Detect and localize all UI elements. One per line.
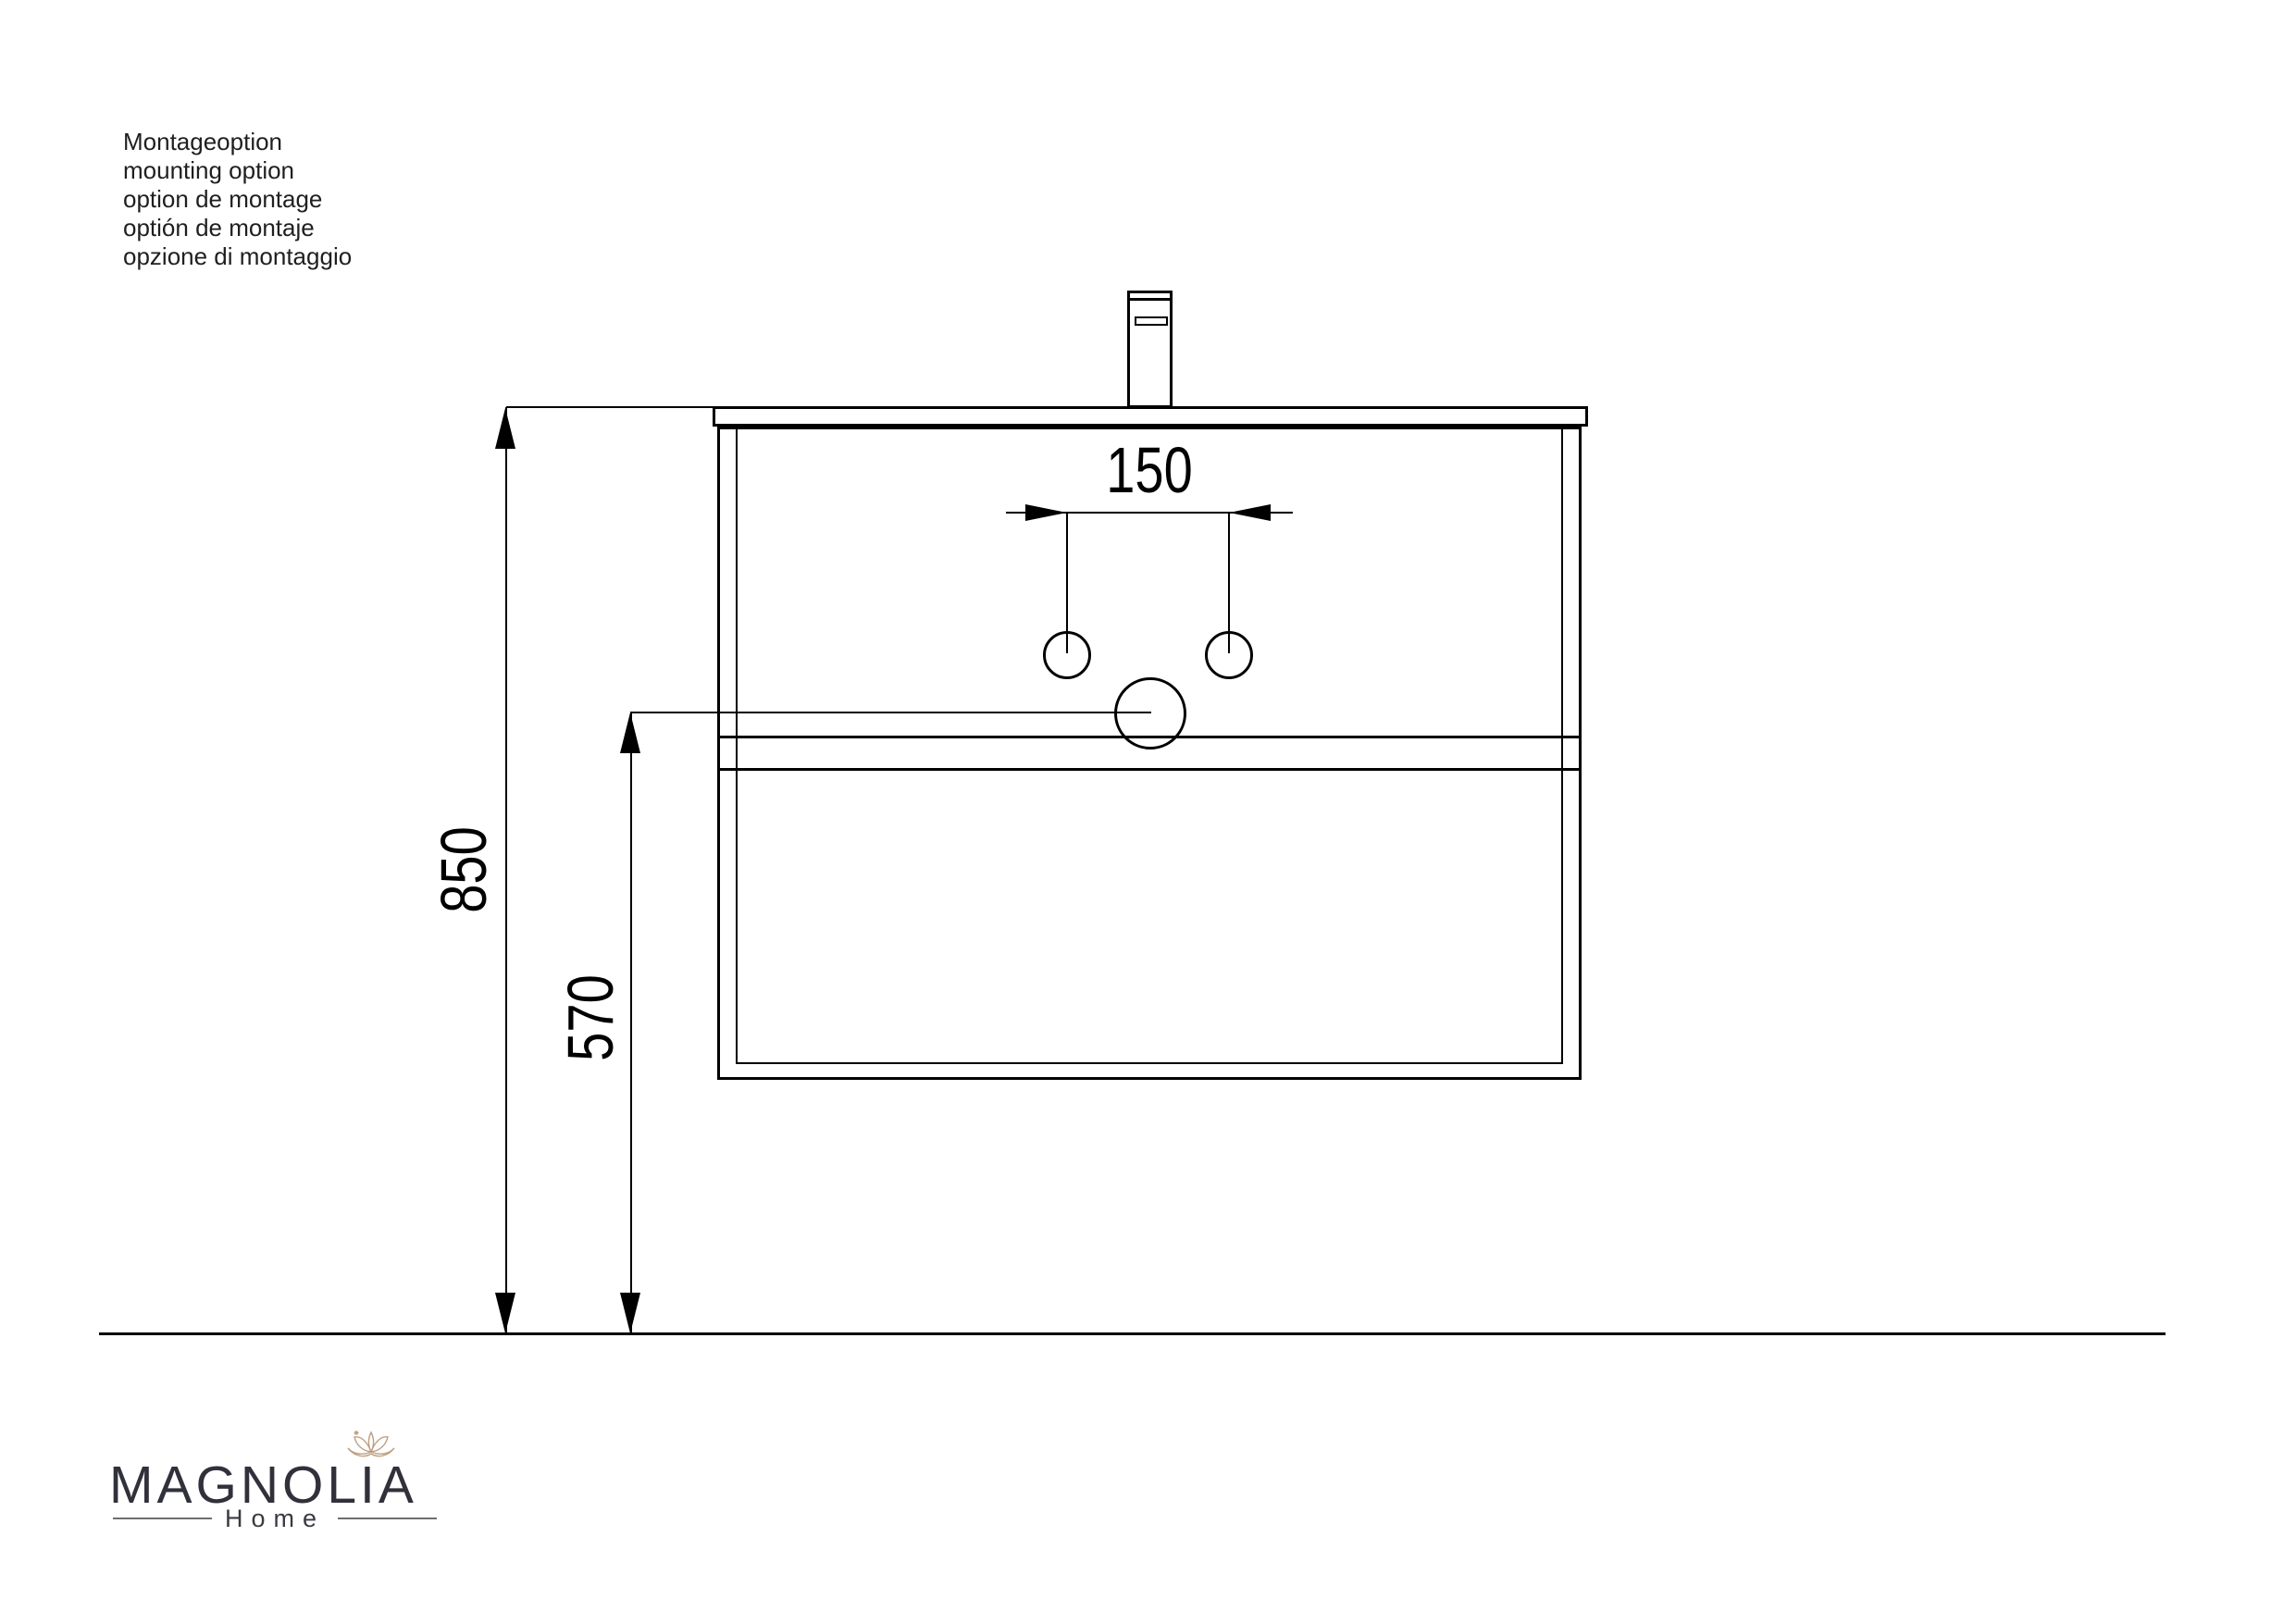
dim-150-arrowhead-right — [1229, 504, 1271, 521]
mounting-option-drawing: Montageoption mounting option option de … — [0, 0, 2296, 1623]
mounting-option-notes: Montageoption mounting option option de … — [123, 128, 352, 271]
dim-570-line — [630, 712, 632, 1335]
note-line-en: mounting option — [123, 156, 352, 185]
faucet-cap-line — [1127, 298, 1173, 301]
cabinet-inner-right-line — [1561, 429, 1563, 1064]
logo-subtitle-row: Home — [113, 1505, 437, 1532]
note-line-it: opzione di montaggio — [123, 242, 352, 271]
dim-150-extension-left — [1066, 513, 1068, 653]
dim-570-leader — [631, 712, 1151, 713]
dim-850-label: 850 — [431, 796, 496, 944]
dim-850-leader — [506, 406, 714, 408]
dim-850-line — [505, 407, 507, 1335]
countertop — [713, 406, 1588, 427]
cabinet-inner-bottom-line — [736, 1062, 1563, 1064]
dim-570-arrowhead-up — [620, 712, 640, 753]
dim-570-label: 570 — [558, 944, 623, 1092]
dim-150-label: 150 — [1075, 438, 1223, 502]
dim-850-arrowhead-up — [495, 408, 515, 449]
note-line-es: optión de montaje — [123, 214, 352, 242]
cabinet-inner-left-line — [736, 429, 738, 1064]
drain-hole-circle — [1114, 677, 1186, 750]
magnolia-flower-icon — [344, 1427, 398, 1467]
faucet-spout — [1135, 316, 1168, 326]
logo-rule-left — [113, 1518, 212, 1519]
cabinet-outline — [717, 427, 1582, 1080]
note-line-fr: option de montage — [123, 185, 352, 214]
floor-line — [99, 1332, 2166, 1335]
dim-570-arrowhead-down — [620, 1293, 640, 1333]
drawer-divider-bottom-line — [717, 768, 1582, 771]
dim-150-extension-right — [1228, 513, 1230, 653]
logo-rule-right — [338, 1518, 437, 1519]
dim-150-arrowhead-left — [1025, 504, 1067, 521]
dim-850-arrowhead-down — [495, 1293, 515, 1333]
faucet-body — [1127, 291, 1173, 408]
note-line-de: Montageoption — [123, 128, 352, 156]
logo-subtitle: Home — [212, 1505, 338, 1533]
